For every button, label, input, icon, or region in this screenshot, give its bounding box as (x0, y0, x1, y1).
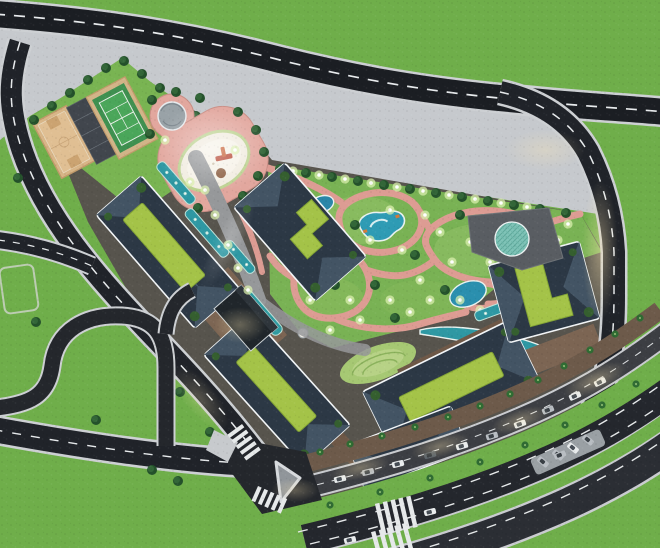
streetlight-glow (271, 478, 319, 502)
playground-glow (154, 104, 270, 192)
entry-glow (214, 307, 266, 343)
film-grain-overlay (0, 0, 660, 548)
masterplan-render (0, 0, 660, 548)
streetlight-glow (582, 180, 618, 320)
streetlight-glow (505, 130, 585, 170)
site-plan-svg (0, 0, 660, 548)
